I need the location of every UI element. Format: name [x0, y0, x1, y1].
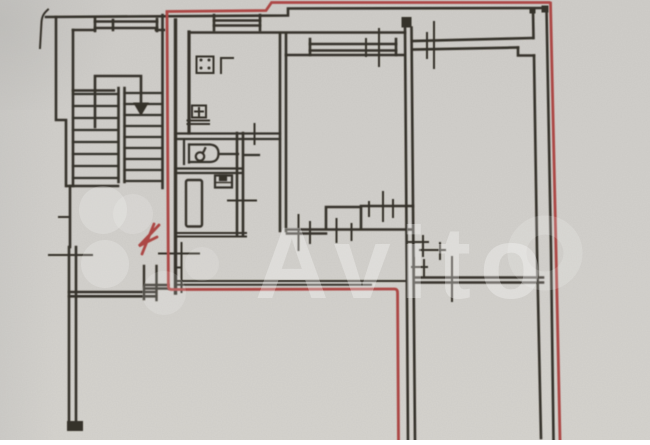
svg-text:Avito: Avito	[255, 206, 551, 320]
